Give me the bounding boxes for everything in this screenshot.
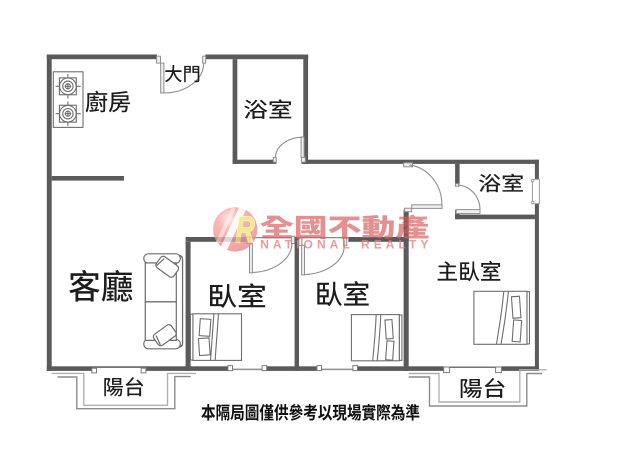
- svg-text:NATIONAL REALTY: NATIONAL REALTY: [260, 238, 428, 252]
- svg-text:R: R: [235, 209, 255, 250]
